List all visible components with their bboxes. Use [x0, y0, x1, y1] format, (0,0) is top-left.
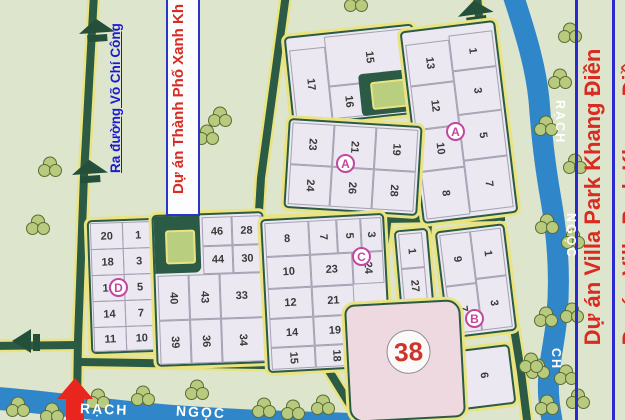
park-area [165, 229, 196, 264]
canal-right-name-2: NGỌC [560, 213, 578, 275]
lot: 10 [125, 325, 158, 351]
canal-right-name-1: RẠCH [549, 100, 567, 160]
lot: 23 [310, 253, 354, 287]
project-right-border-right [612, 0, 615, 420]
lot: 3 [453, 66, 502, 115]
lot: 8 [264, 221, 310, 257]
lot: 1 [398, 232, 425, 269]
project-left-label: Dự án Thành Phố Xanh Kh [170, 0, 194, 208]
lot: 33 [219, 272, 264, 318]
lot: 18 [91, 248, 125, 276]
lot: 23 [290, 122, 334, 166]
lot: 1 [470, 228, 507, 279]
lot: 24 [288, 164, 332, 206]
lot-38-circle: 38 [385, 329, 431, 375]
cul-de-sac-road [153, 215, 201, 274]
lot: 1 [122, 221, 155, 249]
block-narrow: 1 27 [394, 228, 435, 309]
canal-bottom-name-2: NGỌC [176, 403, 227, 420]
lot: 28 [371, 169, 415, 211]
project-right-label: Dự án Villa Park Khang Điền [580, 0, 610, 420]
zone-marker-c: C [352, 247, 371, 266]
zone-marker-b: B [465, 309, 484, 328]
lot: 5 [458, 110, 507, 161]
exit-road-label: Ra đường Võ Chí Công [108, 8, 128, 188]
lot: 27 [401, 267, 428, 304]
zone-marker-d: D [109, 278, 128, 297]
land-plot-map: 17 15 16 13 1 12 3 10 5 8 7 23 21 19 24 … [0, 0, 625, 420]
lot: 7 [308, 219, 338, 254]
project-right-border-left [575, 0, 578, 420]
canal-right-name-3: CH [545, 348, 563, 386]
lot: 8 [421, 167, 471, 220]
lot: 46 [201, 216, 232, 246]
block-38: 38 [344, 299, 466, 420]
lot: 20 [90, 222, 124, 250]
lot: 7 [124, 299, 157, 327]
lot: 3 [123, 247, 156, 275]
lot: 13 [405, 40, 454, 87]
zone-marker-a2: A [336, 154, 355, 173]
lot: 34 [221, 317, 266, 362]
lot: 39 [159, 320, 192, 365]
lot: 28 [231, 215, 261, 245]
lot: 30 [232, 244, 262, 273]
lot: 43 [188, 274, 221, 320]
block-mid: 46 28 44 30 40 43 33 39 36 34 [151, 211, 268, 367]
project-right-label-edge: Dự án Villa Park Khang Điền [618, 0, 625, 420]
lot: 44 [203, 245, 234, 274]
lot: 1 [448, 30, 496, 71]
lot: 5 [124, 273, 157, 301]
lot: 36 [190, 319, 223, 364]
lot: 14 [93, 300, 127, 328]
lot: 40 [158, 275, 191, 321]
lot: 14 [269, 317, 314, 348]
zone-marker-a1: A [446, 122, 465, 141]
lot: 6 [460, 349, 508, 402]
lot: 19 [374, 127, 418, 171]
lot: 26 [330, 167, 374, 209]
lot: 11 [93, 326, 127, 352]
lot: 7 [464, 155, 514, 212]
canal-bottom-name-1: RẠCH [80, 400, 129, 418]
lot: 10 [266, 255, 312, 289]
lot: 15 [271, 346, 316, 370]
lot: 12 [268, 287, 314, 319]
